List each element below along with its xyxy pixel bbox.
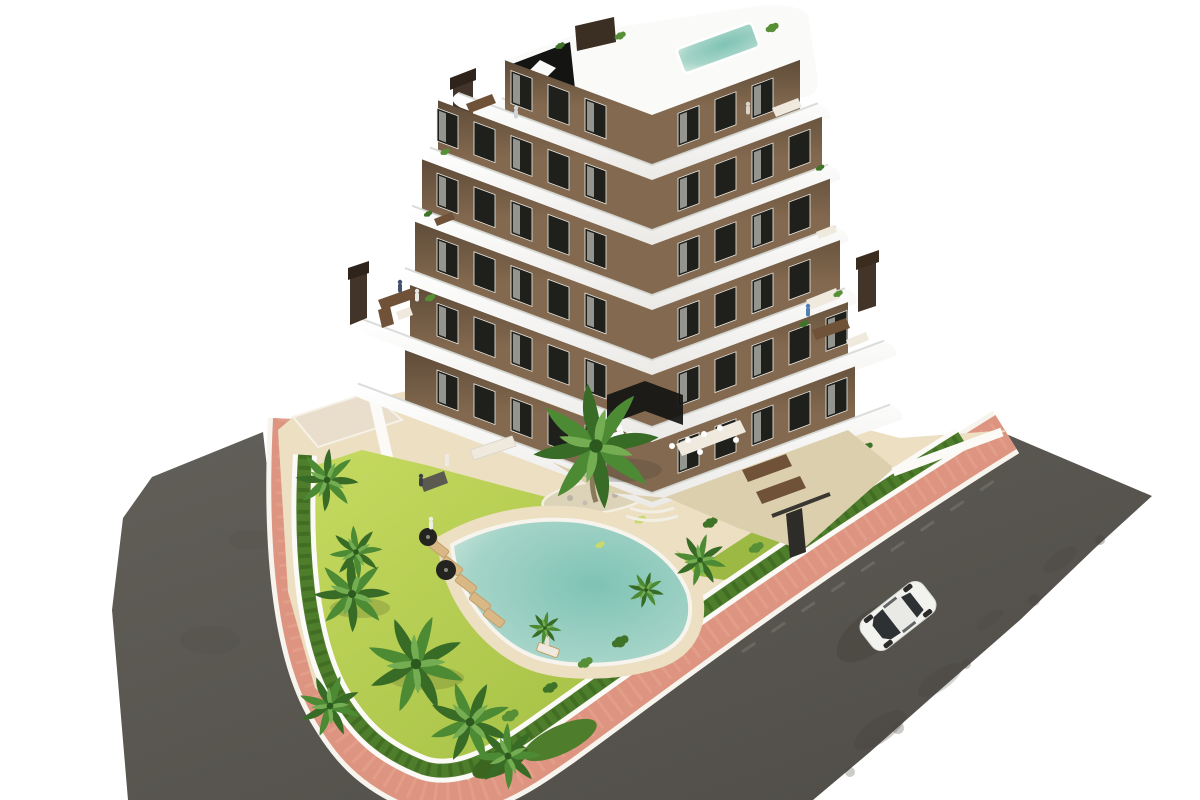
person — [806, 304, 810, 317]
render-canvas — [0, 0, 1200, 800]
window-curtain — [513, 333, 520, 365]
window-curtain — [587, 166, 594, 198]
window-curtain — [680, 307, 687, 339]
person — [514, 106, 518, 119]
window-curtain — [513, 138, 520, 170]
person — [746, 102, 750, 115]
window-curtain — [513, 268, 520, 300]
window-curtain — [439, 176, 446, 208]
window-curtain — [439, 373, 446, 405]
person — [429, 517, 433, 530]
window-curtain — [587, 296, 594, 328]
window-curtain — [680, 112, 687, 144]
architectural-render — [0, 0, 1200, 800]
window-curtain — [587, 231, 594, 263]
window-curtain — [513, 400, 520, 432]
window-curtain — [513, 73, 520, 105]
window-curtain — [754, 84, 761, 116]
person — [415, 289, 419, 302]
window-curtain — [513, 203, 520, 235]
window-curtain — [754, 411, 761, 443]
window-curtain — [587, 101, 594, 133]
person — [445, 454, 449, 467]
window-curtain — [828, 384, 835, 416]
window-curtain — [754, 149, 761, 181]
window-curtain — [439, 111, 446, 143]
window-curtain — [680, 242, 687, 274]
window-curtain — [754, 344, 761, 376]
person — [398, 280, 402, 293]
window-curtain — [439, 241, 446, 273]
window-curtain — [754, 214, 761, 246]
window-curtain — [439, 306, 446, 338]
person — [419, 474, 423, 487]
window-curtain — [680, 177, 687, 209]
window-curtain — [754, 279, 761, 311]
